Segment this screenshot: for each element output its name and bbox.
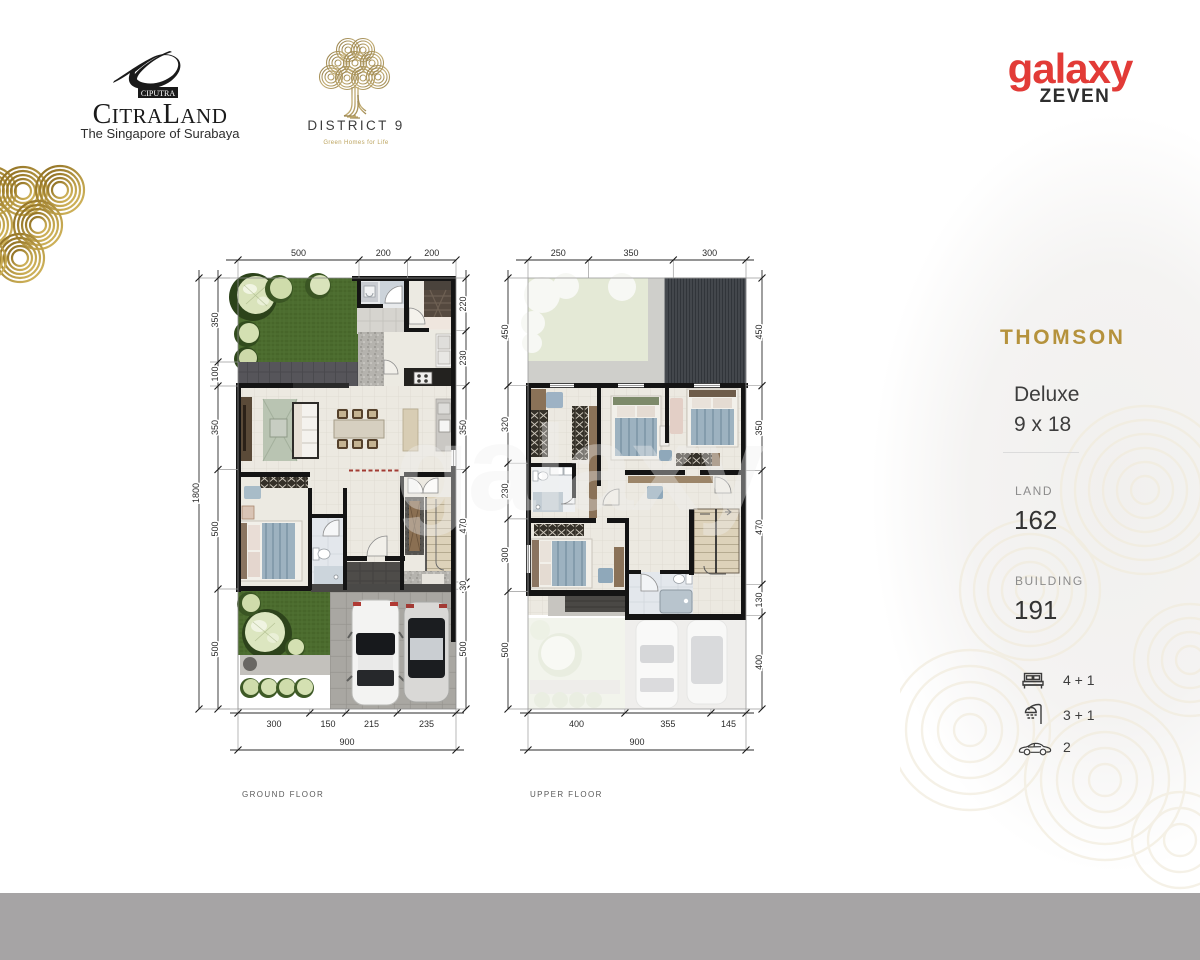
svg-text:235: 235 (419, 719, 434, 729)
svg-text:220: 220 (458, 296, 468, 311)
svg-text:300: 300 (266, 719, 281, 729)
svg-text:500: 500 (500, 642, 510, 657)
svg-text:350: 350 (210, 420, 220, 435)
svg-text:215: 215 (364, 719, 379, 729)
svg-text:145: 145 (721, 719, 736, 729)
svg-text:The Singapore of Surabaya: The Singapore of Surabaya (81, 126, 241, 140)
svg-text:130: 130 (754, 592, 764, 607)
svg-text:900: 900 (339, 737, 354, 747)
svg-text:230: 230 (458, 350, 468, 365)
svg-text:Green Homes for Life: Green Homes for Life (323, 140, 389, 146)
svg-text:1800: 1800 (191, 483, 201, 503)
svg-text:200: 200 (376, 248, 391, 258)
svg-text:500: 500 (210, 521, 220, 536)
svg-text:250: 250 (551, 248, 566, 258)
svg-text:500: 500 (458, 641, 468, 656)
svg-text:200: 200 (424, 248, 439, 258)
svg-text:UPPER FLOOR: UPPER FLOOR (530, 790, 603, 799)
svg-text:ZEVEN: ZEVEN (1040, 86, 1111, 107)
svg-text:350: 350 (210, 312, 220, 327)
svg-text:300: 300 (702, 248, 717, 258)
svg-text:350: 350 (623, 248, 638, 258)
svg-text:400: 400 (569, 719, 584, 729)
svg-text:galaxy: galaxy (1008, 45, 1134, 92)
svg-text:355: 355 (660, 719, 675, 729)
svg-text:100: 100 (210, 366, 220, 381)
svg-text:CIPUTRA: CIPUTRA (141, 89, 175, 98)
svg-text:450: 450 (754, 324, 764, 339)
svg-text:400: 400 (754, 655, 764, 670)
svg-text:500: 500 (210, 641, 220, 656)
svg-text:GROUND FLOOR: GROUND FLOOR (242, 790, 324, 799)
svg-text:450: 450 (500, 324, 510, 339)
svg-text:500: 500 (291, 248, 306, 258)
svg-text:30: 30 (458, 581, 468, 591)
svg-text:150: 150 (320, 719, 335, 729)
svg-text:DISTRICT 9: DISTRICT 9 (307, 118, 404, 133)
svg-text:900: 900 (629, 737, 644, 747)
